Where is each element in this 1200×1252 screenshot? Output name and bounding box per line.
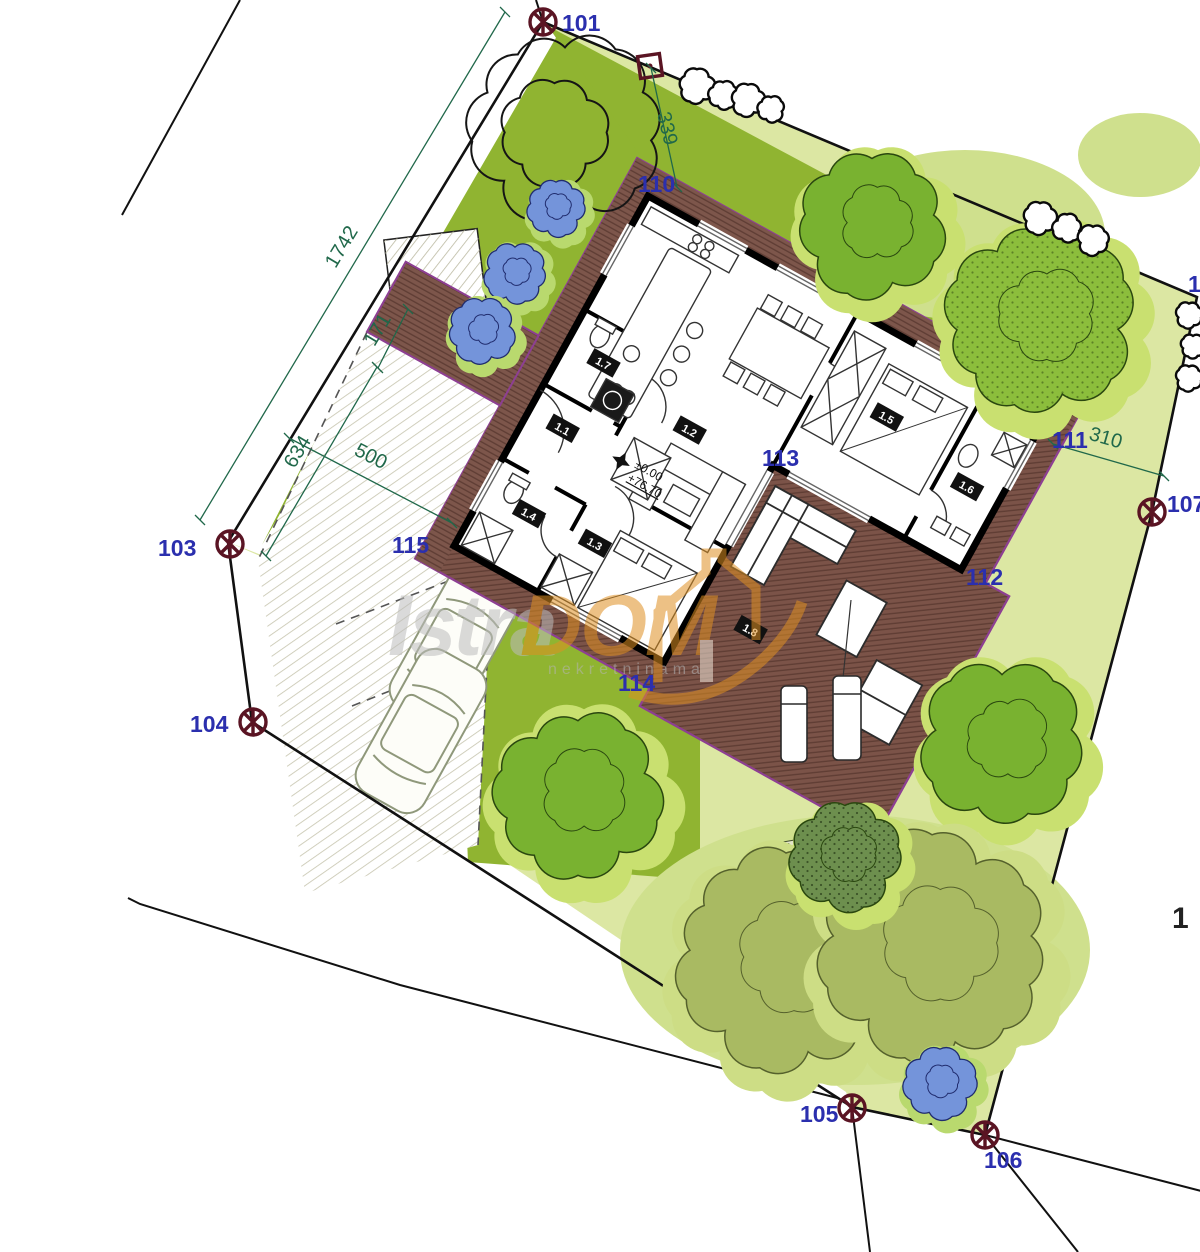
bush-blue xyxy=(450,299,516,365)
partial-label-right-top: 1 xyxy=(1188,271,1200,297)
partial-label-right-mid: 1 xyxy=(1172,902,1189,935)
site-plan-drawing: 1.1 1.2 1.3 1.4 1.5 1.6 1.7 1.8 ±0.00 +7… xyxy=(0,0,1200,1252)
point-label-104: 104 xyxy=(190,711,229,737)
point-label-106: 106 xyxy=(984,1147,1022,1173)
point-label-105: 105 xyxy=(800,1101,839,1127)
area-label-114: 114 xyxy=(618,670,655,696)
lounger-2 xyxy=(833,676,861,760)
bush-blue xyxy=(484,244,545,304)
house-icon-door xyxy=(700,640,713,682)
shrub-symbol xyxy=(757,96,784,122)
area-label-110: 110 xyxy=(638,171,675,197)
area-label-115: 115 xyxy=(392,532,429,558)
point-label-101: 101 xyxy=(562,10,601,36)
watermark-brand-orange: DOM xyxy=(520,578,719,674)
shrub-symbol xyxy=(1176,302,1200,328)
point-label-107: 107 xyxy=(1167,491,1200,517)
area-label-112: 112 xyxy=(966,564,1003,590)
area-label-111: 111 xyxy=(1052,427,1088,453)
halo-patch-corner xyxy=(1078,113,1200,197)
lounger-1 xyxy=(781,686,807,762)
shrub-symbol xyxy=(1078,225,1109,256)
point-label-103: 103 xyxy=(158,535,196,561)
tree-canopy xyxy=(921,664,1082,823)
area-label-113: 113 xyxy=(762,445,799,471)
site-plan-page: 1.1 1.2 1.3 1.4 1.5 1.6 1.7 1.8 ±0.00 +7… xyxy=(0,0,1200,1252)
shrub-symbol xyxy=(1176,365,1200,391)
shrub-symbol xyxy=(1181,335,1200,359)
